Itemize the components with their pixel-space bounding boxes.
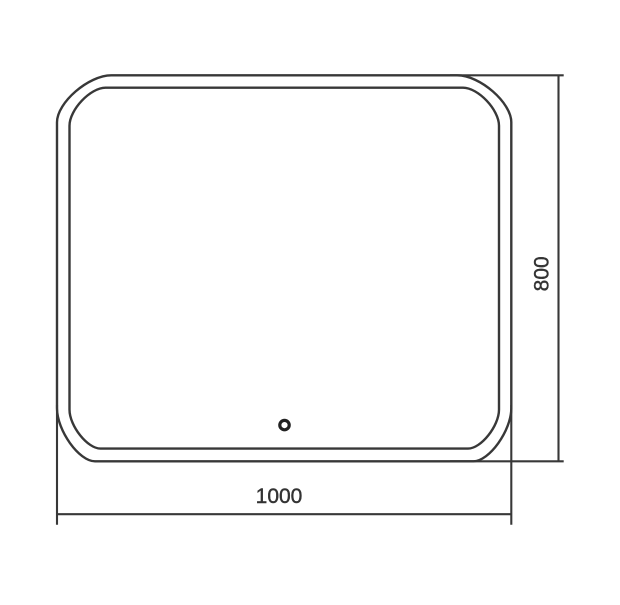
svg-text:1000: 1000	[256, 485, 303, 508]
svg-text:800: 800	[531, 256, 554, 291]
